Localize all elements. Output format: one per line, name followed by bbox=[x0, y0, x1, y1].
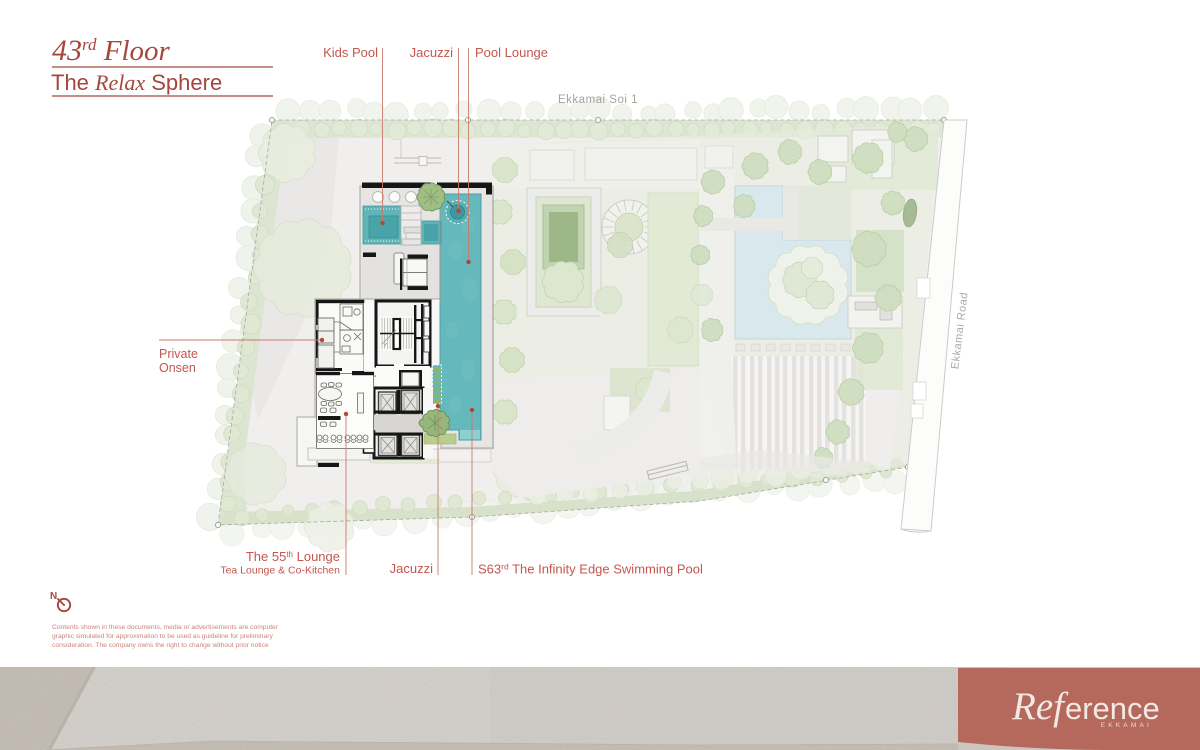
svg-text:Jacuzzi: Jacuzzi bbox=[410, 45, 453, 60]
svg-text:Private: Private bbox=[159, 347, 198, 361]
svg-text:The 55th Lounge: The 55th Lounge bbox=[246, 549, 340, 564]
svg-text:Jacuzzi: Jacuzzi bbox=[390, 561, 433, 576]
svg-text:Ekkamai Soi 1: Ekkamai Soi 1 bbox=[558, 94, 638, 106]
svg-text:Onsen: Onsen bbox=[159, 361, 196, 375]
svg-text:43rd Floor: 43rd Floor bbox=[52, 34, 171, 67]
svg-text:N: N bbox=[50, 591, 57, 602]
svg-text:consideration. The company own: consideration. The company owns the righ… bbox=[52, 642, 269, 649]
svg-text:Contents shown in these docume: Contents shown in these documents, media… bbox=[52, 624, 279, 631]
svg-text:The Relax Sphere: The Relax Sphere bbox=[51, 70, 222, 95]
svg-text:EKKAMAI: EKKAMAI bbox=[1101, 722, 1152, 729]
svg-text:Kids Pool: Kids Pool bbox=[323, 45, 378, 60]
svg-text:Tea Lounge & Co-Kitchen: Tea Lounge & Co-Kitchen bbox=[220, 565, 340, 577]
svg-text:S63rd The Infinity Edge Swimmi: S63rd The Infinity Edge Swimming Pool bbox=[478, 562, 703, 577]
svg-text:Pool Lounge: Pool Lounge bbox=[475, 45, 548, 60]
svg-text:graphic simulated for approxim: graphic simulated for approximation to b… bbox=[52, 633, 273, 640]
